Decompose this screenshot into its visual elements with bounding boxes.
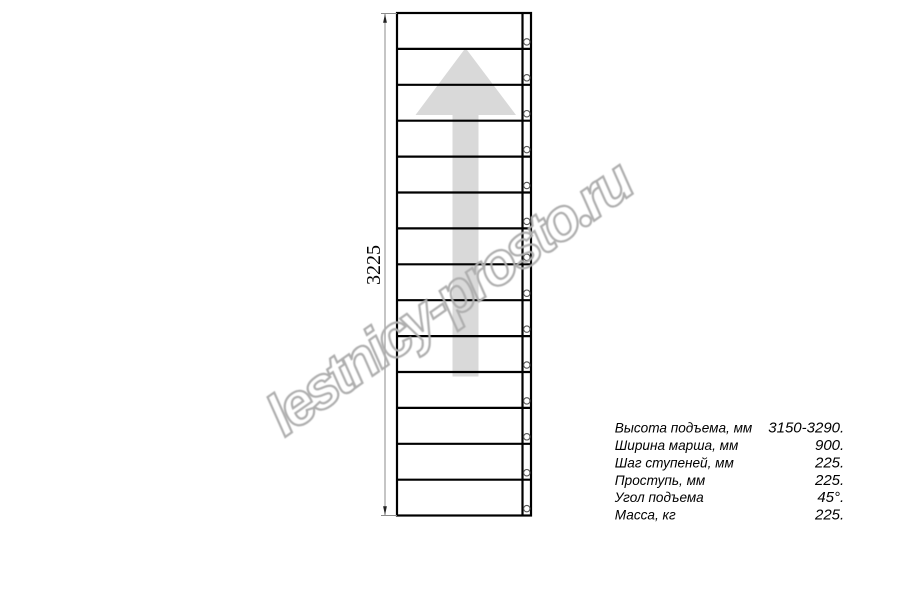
svg-text:3225: 3225 xyxy=(363,245,385,285)
svg-text:225.: 225. xyxy=(814,472,844,489)
svg-text:Проступь, мм: Проступь, мм xyxy=(615,473,706,488)
svg-text:900.: 900. xyxy=(815,437,844,454)
svg-text:225.: 225. xyxy=(814,454,844,471)
svg-text:225.: 225. xyxy=(814,507,844,524)
svg-text:Угол подъема: Угол подъема xyxy=(614,490,704,505)
svg-text:45°.: 45°. xyxy=(817,489,844,506)
svg-text:3150-3290.: 3150-3290. xyxy=(768,420,844,437)
svg-text:Масса, кг: Масса, кг xyxy=(615,508,676,523)
svg-text:Шаг ступеней, мм: Шаг ступеней, мм xyxy=(615,455,735,470)
svg-text:Высота подъема, мм: Высота подъема, мм xyxy=(615,421,753,436)
svg-text:Ширина марша, мм: Ширина марша, мм xyxy=(615,438,739,453)
